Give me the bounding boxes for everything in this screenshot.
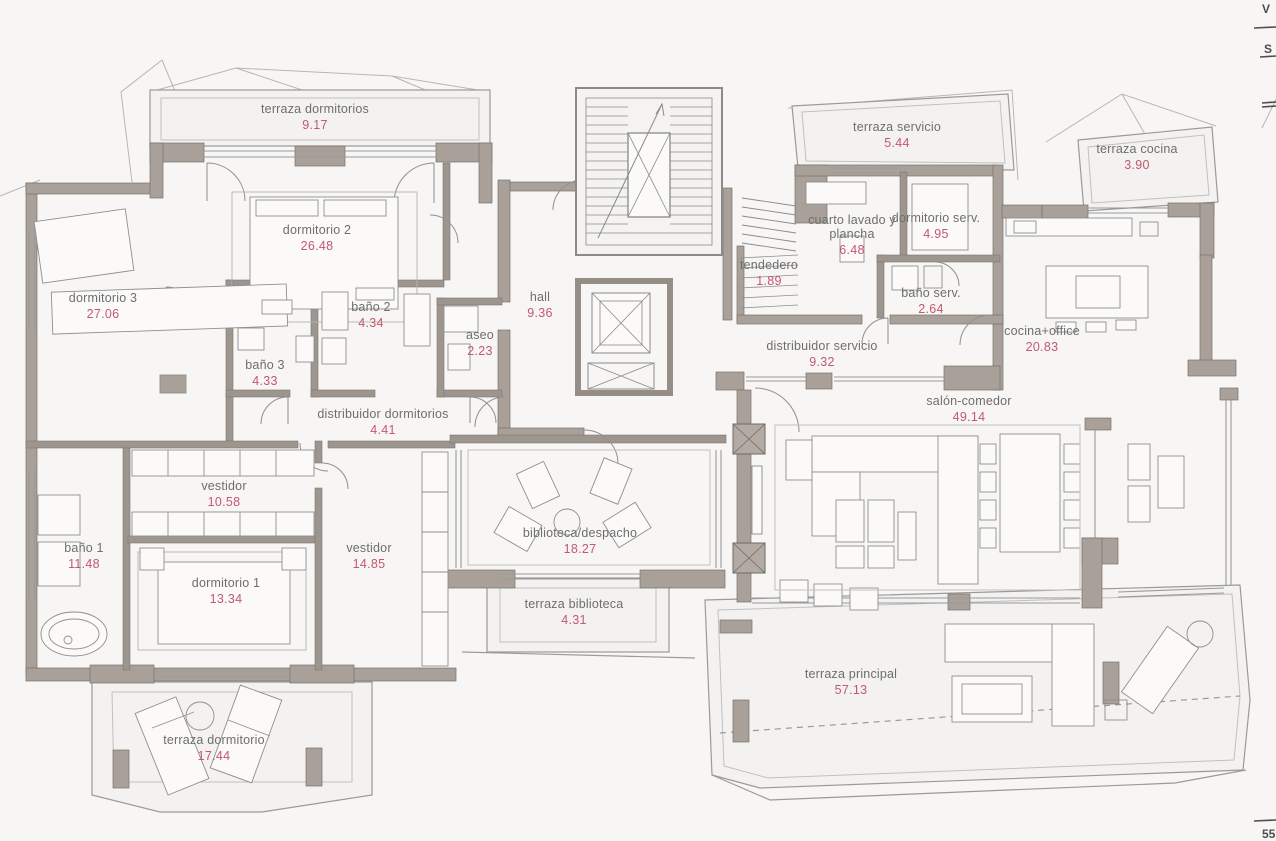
floor-plan-drawing xyxy=(0,0,1276,841)
elevator xyxy=(578,281,670,393)
edge-legend-lines xyxy=(1254,27,1276,821)
edge-mark-top-s: S xyxy=(1264,42,1272,56)
service-stair xyxy=(742,198,796,251)
edge-mark-bottom: 55 xyxy=(1262,827,1275,841)
floor-plan-page: terraza dormitorios 9.17 dormitorio 2 26… xyxy=(0,0,1276,841)
edge-mark-top-v: V xyxy=(1262,2,1270,16)
staircase xyxy=(576,88,722,255)
